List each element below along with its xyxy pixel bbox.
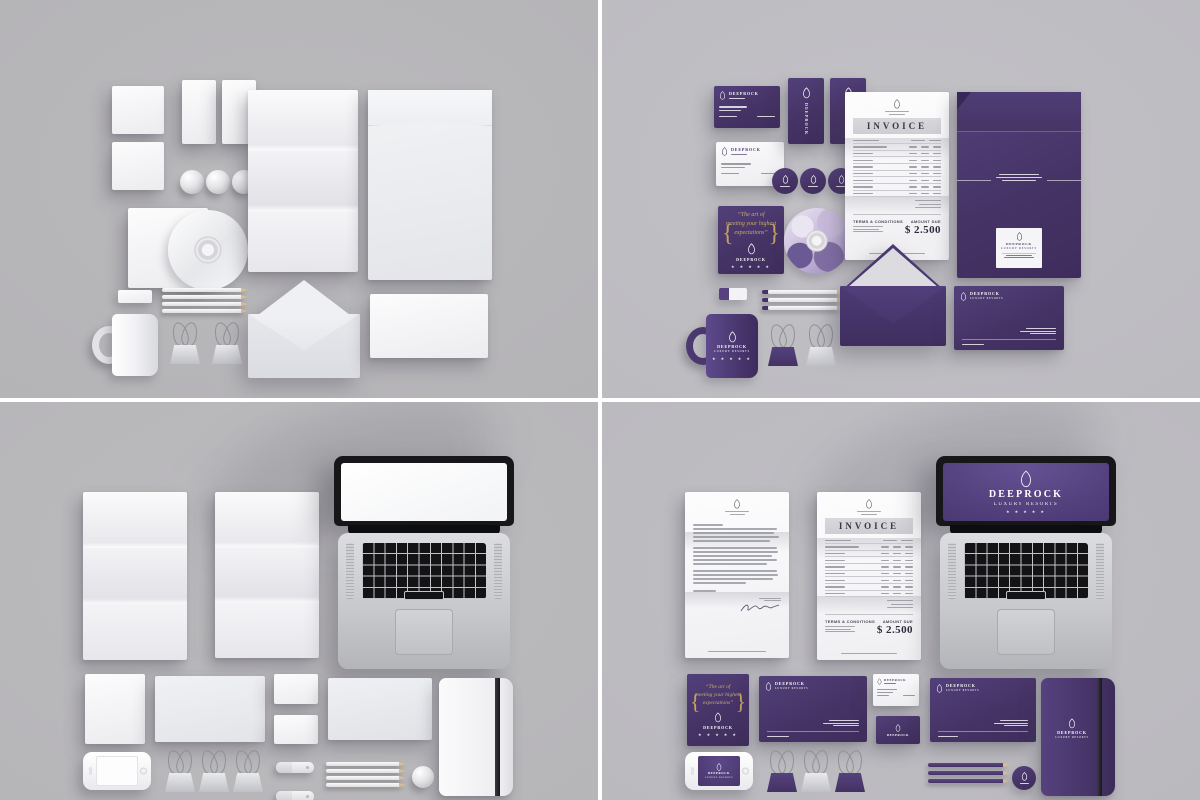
invoice-footer: TERMS & CONDITIONS AMOUNT DUE $ 2.500	[825, 614, 913, 636]
usb-cap	[276, 791, 292, 800]
clip-body	[170, 345, 200, 364]
business-card-vertical: DEEPROCK	[788, 78, 824, 144]
text-line	[962, 344, 984, 345]
text-line	[887, 607, 913, 608]
brand-name: DEEPROCK	[708, 772, 730, 775]
text-line	[825, 553, 845, 554]
text-line	[853, 166, 873, 167]
branding-mockup-collage: { "brand": { "name": "DEEPROCK", "taglin…	[0, 0, 1200, 800]
phone-earpiece	[89, 767, 92, 775]
binder-clip	[165, 750, 195, 792]
brand-logo-icon	[865, 499, 873, 509]
text-line	[825, 626, 855, 627]
text-line	[719, 106, 747, 108]
brand-logo-icon	[895, 724, 901, 732]
usb-stick	[276, 791, 314, 800]
invoice-row	[825, 577, 913, 584]
text-line	[1004, 257, 1034, 258]
scene-blank-stationery	[0, 0, 598, 398]
text-line	[909, 186, 917, 187]
notebook-branded: DEEPROCK LUXURY RESORTS	[1041, 678, 1115, 796]
business-card-back: DEEPROCK	[876, 716, 920, 744]
pencil	[162, 302, 248, 306]
round-sticker	[772, 168, 798, 194]
clip-body	[806, 347, 836, 366]
text-line	[885, 111, 909, 112]
text-line	[780, 186, 790, 187]
text-line	[725, 511, 749, 512]
clip-body	[165, 773, 195, 792]
text-line	[881, 580, 889, 581]
dl-envelope-branded: DEEPROCKLUXURY RESORTS	[954, 286, 1064, 350]
pencil-branded	[928, 779, 1010, 783]
speaker-grille	[346, 543, 354, 599]
invoice-row	[825, 591, 913, 598]
usb-cap	[276, 762, 292, 773]
pencil-body	[768, 298, 837, 302]
invoice-row	[825, 544, 913, 551]
text-line	[921, 186, 929, 187]
brand-logo-icon	[719, 91, 726, 100]
clip-body	[835, 773, 865, 792]
envelope-flap	[957, 92, 1081, 132]
divider-line	[767, 731, 859, 732]
folded-letterhead	[83, 492, 187, 660]
text-line	[905, 546, 913, 547]
brand-name: DEEPROCK	[989, 490, 1063, 500]
brand-name: DEEPROCK	[884, 679, 906, 682]
keyboard	[964, 543, 1088, 599]
text-line	[825, 629, 851, 630]
brand-logo-icon	[1016, 232, 1023, 241]
text-line	[841, 653, 897, 654]
text-line	[693, 578, 773, 579]
text-line	[825, 566, 845, 567]
text-line	[853, 160, 873, 161]
text-line	[808, 186, 818, 187]
brand-tagline: LUXURY RESORTS	[714, 351, 750, 354]
invoice-content: INVOICE TERMS & CONDITIONS	[853, 99, 941, 254]
brand-name: DEEPROCK	[736, 258, 766, 262]
pencil	[326, 776, 406, 780]
speaker-grille	[948, 543, 956, 599]
phone-screen: DEEPROCK LUXURY RESORTS	[698, 756, 740, 786]
invoice-subtotals	[825, 600, 913, 608]
text-line	[881, 586, 889, 587]
text-line	[825, 586, 845, 587]
text-line	[905, 593, 913, 594]
c4-envelope	[368, 90, 492, 280]
text-line	[693, 536, 779, 537]
brand-logo-icon	[728, 331, 737, 343]
invoice-terms: TERMS & CONDITIONS	[825, 619, 875, 632]
invoice-row	[825, 551, 913, 558]
text-line	[693, 547, 777, 548]
text-line	[921, 146, 929, 147]
text-line	[905, 580, 913, 581]
text-line	[833, 725, 859, 726]
text-line	[938, 736, 958, 737]
text-line	[883, 540, 897, 541]
brand-name: DEEPROCK	[731, 148, 761, 152]
brand-logo-icon	[1021, 772, 1028, 781]
clip-body	[212, 345, 242, 364]
phone-home-button	[140, 768, 147, 775]
text-line	[933, 160, 941, 161]
brand-tagline: LUXURY RESORTS	[1001, 248, 1037, 251]
text-line	[857, 511, 881, 512]
pencil	[162, 288, 248, 292]
pencil-body	[162, 295, 241, 299]
brand-logo-icon	[810, 175, 817, 184]
divider-line	[1047, 180, 1081, 181]
mug	[92, 314, 162, 378]
square-note	[85, 674, 145, 744]
laptop-brand-block: DEEPROCK LUXURY RESORTS ★ ★ ★ ★ ★	[989, 470, 1063, 514]
text-line	[921, 153, 929, 154]
round-sticker	[800, 168, 826, 194]
text-line	[1000, 720, 1028, 721]
invoice-row	[853, 164, 941, 171]
invoice-subtotals	[853, 200, 941, 208]
brand-logo-icon	[838, 175, 845, 184]
text-line	[721, 163, 751, 165]
brand-logo-icon	[877, 678, 882, 685]
text-line	[1020, 331, 1056, 332]
pencil-body	[768, 306, 837, 310]
text-line	[825, 593, 845, 594]
text-line	[893, 560, 901, 561]
business-card-front: DEEPROCK	[714, 86, 780, 128]
text-line	[853, 186, 873, 187]
brand-tagline: LUXURY RESORTS	[775, 688, 808, 691]
text-line	[905, 573, 913, 574]
business-card	[274, 674, 318, 704]
pencil-body	[326, 762, 399, 766]
text-line	[877, 689, 897, 690]
notebook-brand-block: DEEPROCK LUXURY RESORTS	[1047, 718, 1097, 740]
sphere	[180, 170, 204, 194]
quote-card: { } “The art ofmeeting your highestexpec…	[718, 206, 784, 274]
text-line	[901, 540, 913, 541]
text-line	[909, 180, 917, 181]
text-line	[919, 204, 941, 205]
square-card	[112, 142, 164, 190]
laptop-screen	[334, 456, 514, 526]
usb-indicator	[306, 766, 309, 769]
usb-stick	[276, 762, 314, 773]
invoice-row	[853, 171, 941, 178]
text-line	[829, 720, 859, 721]
binder-clip	[801, 750, 831, 792]
brand-logo-icon	[733, 499, 741, 509]
sphere	[412, 766, 434, 788]
brand-logo-icon	[765, 682, 772, 691]
invoice-row	[853, 144, 941, 151]
brand-logo-icon	[1019, 470, 1033, 488]
text-line	[721, 173, 739, 174]
text-line	[909, 146, 917, 147]
text-line	[853, 153, 873, 154]
text-line	[893, 553, 901, 554]
invoice-amount-due: AMOUNT DUE $ 2.500	[905, 219, 941, 236]
cd-hole	[806, 230, 828, 252]
brand-name: DEEPROCK	[717, 345, 747, 349]
pencil-tip	[241, 288, 248, 292]
scene-branded-stationery: DEEPROCK DEEPROCK DEEPROCK DEEPROCK	[602, 0, 1200, 398]
text-line	[881, 573, 889, 574]
business-card	[274, 715, 318, 744]
pencil-tip	[1003, 771, 1010, 775]
mug-body: DEEPROCK LUXURY RESORTS ★ ★ ★ ★ ★	[706, 314, 758, 378]
text-line	[893, 546, 901, 547]
divider-line	[962, 339, 1056, 340]
clip-body	[233, 773, 263, 792]
brand-logo-icon	[936, 684, 943, 693]
pencil-tip	[1003, 779, 1010, 783]
text-line	[825, 540, 851, 541]
text-line	[893, 593, 901, 594]
dl-envelope-open	[248, 280, 360, 378]
text-line	[933, 146, 941, 147]
brand-name: DEEPROCK	[729, 92, 759, 96]
brand-tagline: LUXURY RESORTS	[970, 298, 1003, 301]
text-line	[933, 193, 941, 194]
brand-name-vertical: DEEPROCK	[804, 103, 808, 135]
invoice-terms: TERMS & CONDITIONS	[853, 219, 903, 232]
trackpad	[395, 609, 453, 655]
text-line	[708, 651, 766, 652]
sphere	[206, 170, 230, 194]
invoice-total: $ 2.500	[877, 624, 913, 636]
pencil-tip	[241, 302, 248, 306]
brand-logo-icon	[721, 147, 728, 156]
brand-name: DEEPROCK	[1006, 243, 1032, 247]
scene-branded-laptop-set: INVOICE TERMS & CONDITIONS	[602, 402, 1200, 800]
text-line	[905, 560, 913, 561]
envelope-brand-row: DEEPROCKLUXURY RESORTS	[960, 292, 1058, 301]
invoice-title: INVOICE	[853, 118, 941, 134]
pencil-body	[928, 779, 1003, 783]
envelope-address	[823, 720, 859, 726]
laptop-branded: DEEPROCK LUXURY RESORTS ★ ★ ★ ★ ★	[936, 456, 1116, 670]
text-line	[921, 160, 929, 161]
text-line	[893, 586, 901, 587]
text-line	[719, 116, 737, 117]
binder-clip-branded	[767, 750, 797, 792]
text-line	[721, 167, 745, 168]
signature	[739, 601, 781, 614]
text-line	[933, 186, 941, 187]
text-line	[921, 180, 929, 181]
pencil-tip	[399, 762, 406, 766]
letterhead-document	[685, 492, 789, 658]
text-line	[853, 229, 879, 230]
pencil-tip	[1003, 763, 1010, 767]
text-line	[693, 555, 772, 556]
text-line	[731, 154, 747, 155]
pencil-body	[768, 290, 837, 294]
pencil-body	[162, 309, 241, 313]
text-line	[911, 140, 925, 141]
brand-tagline: LUXURY RESORTS	[994, 502, 1058, 507]
divider-line	[938, 731, 1028, 732]
brand-logo-icon	[714, 712, 722, 723]
letter-body	[693, 524, 781, 591]
text-line	[887, 600, 913, 601]
invoice-header-row	[853, 137, 941, 144]
star-rating: ★ ★ ★ ★ ★	[712, 356, 752, 361]
invoice-document: INVOICE TERMS & CONDITIONS	[845, 92, 949, 260]
text-line	[853, 146, 887, 147]
text-line	[881, 546, 889, 547]
text-line	[1004, 725, 1028, 726]
brand-tagline: LUXURY RESORTS	[705, 777, 733, 779]
laptop-screen: DEEPROCK LUXURY RESORTS ★ ★ ★ ★ ★	[936, 456, 1116, 526]
pencil-body	[326, 783, 399, 787]
invoice-row	[853, 157, 941, 164]
envelope-address	[1020, 328, 1056, 334]
folded-letterhead	[248, 90, 358, 272]
text-line	[825, 573, 845, 574]
phone-branded: DEEPROCK LUXURY RESORTS	[685, 752, 753, 790]
letterhead-content	[693, 499, 781, 652]
cd-disc	[168, 210, 248, 290]
text-line	[730, 514, 745, 515]
binder-clip-branded	[768, 324, 798, 366]
envelope-flap	[254, 280, 354, 318]
text-line	[729, 98, 745, 99]
pencil	[326, 762, 406, 766]
brand-name: DEEPROCK	[1057, 731, 1087, 735]
notebook	[439, 678, 513, 796]
envelope-address	[995, 174, 1043, 181]
clip-body	[801, 773, 831, 792]
text-line	[996, 177, 1042, 178]
text-line	[909, 160, 917, 161]
text-line	[1006, 255, 1032, 256]
dl-envelope-open-branded	[840, 246, 946, 346]
text-line	[884, 683, 896, 684]
text-line	[853, 140, 879, 141]
square-card	[112, 86, 164, 134]
dl-envelope-branded: DEEPROCKLUXURY RESORTS	[930, 678, 1036, 742]
pencil	[762, 306, 844, 310]
business-card-vertical	[182, 80, 216, 144]
text-line	[853, 193, 873, 194]
phone-brand-block: DEEPROCK LUXURY RESORTS	[705, 763, 733, 779]
scene-blank-laptop-set	[0, 402, 598, 800]
brand-name: DEEPROCK	[703, 726, 733, 730]
usb-indicator	[306, 795, 309, 798]
text-line	[757, 116, 775, 117]
text-line	[823, 723, 859, 724]
brace-left: {	[690, 691, 701, 713]
binder-clip	[199, 750, 229, 792]
binder-clip-branded	[835, 750, 865, 792]
binder-clip	[233, 750, 263, 792]
text-line	[1002, 180, 1036, 181]
pencil	[326, 783, 406, 787]
pencil	[326, 769, 406, 773]
pencil-tip	[399, 769, 406, 773]
text-line	[693, 532, 774, 533]
brace-right: }	[768, 222, 780, 246]
brand-name: DEEPROCK	[946, 684, 979, 688]
brace-left: {	[722, 222, 734, 246]
invoice-total: $ 2.500	[905, 224, 941, 236]
brand-logo-icon	[782, 175, 789, 184]
brace-right: }	[735, 691, 746, 713]
brand-logo-icon	[716, 763, 722, 771]
text-line	[881, 553, 889, 554]
text-line	[881, 566, 889, 567]
pencil-tip	[241, 295, 248, 299]
text-line	[933, 166, 941, 167]
text-line	[693, 551, 778, 552]
text-line	[889, 114, 905, 115]
pencil-tip	[399, 783, 406, 787]
text-line	[693, 524, 723, 525]
invoice-row	[853, 177, 941, 184]
brand-tagline: LUXURY RESORTS	[946, 690, 979, 693]
invoice-row	[825, 584, 913, 591]
pencil	[162, 295, 248, 299]
terms-label: TERMS & CONDITIONS	[825, 619, 875, 624]
text-line	[693, 563, 767, 564]
laptop-body	[940, 533, 1112, 669]
notebook-elastic	[495, 678, 500, 796]
envelope-address	[994, 720, 1028, 726]
clip-body	[768, 347, 798, 366]
text-line	[825, 560, 845, 561]
text-line	[905, 553, 913, 554]
mug-branded: DEEPROCK LUXURY RESORTS ★ ★ ★ ★ ★	[686, 314, 762, 380]
text-line	[693, 582, 746, 583]
eraser	[118, 290, 152, 303]
text-line	[825, 546, 859, 547]
text-line	[825, 631, 855, 632]
text-line	[921, 193, 929, 194]
spacebar	[404, 591, 444, 600]
pencil-body	[928, 763, 1003, 767]
text-line	[915, 200, 941, 201]
text-line	[915, 207, 941, 208]
brand-name: DEEPROCK	[775, 682, 808, 686]
brand-logo-icon	[802, 87, 811, 99]
invoice-amount-due: AMOUNT DUE $ 2.500	[877, 619, 913, 636]
star-rating: ★ ★ ★ ★ ★	[698, 732, 738, 737]
text-line	[1030, 333, 1056, 334]
brand-logo-icon	[747, 243, 756, 255]
pencil-body	[928, 771, 1003, 775]
quote-card: { } “The art ofmeeting your highestexpec…	[687, 674, 749, 746]
text-line	[693, 570, 777, 571]
pencil-body	[326, 776, 399, 780]
invoice-footer: TERMS & CONDITIONS AMOUNT DUE $ 2.500	[853, 214, 941, 236]
pencil-tip	[241, 309, 248, 313]
invoice-row	[853, 191, 941, 198]
invoice-document: INVOICE TERMS & CONDITIONS	[817, 492, 921, 660]
brand-name: DEEPROCK	[887, 734, 909, 737]
text-line	[994, 723, 1028, 724]
phone	[83, 752, 151, 790]
invoice-row	[825, 564, 913, 571]
laptop	[334, 456, 514, 670]
text-line	[759, 598, 781, 599]
text-line	[893, 580, 901, 581]
text-line	[693, 528, 777, 529]
